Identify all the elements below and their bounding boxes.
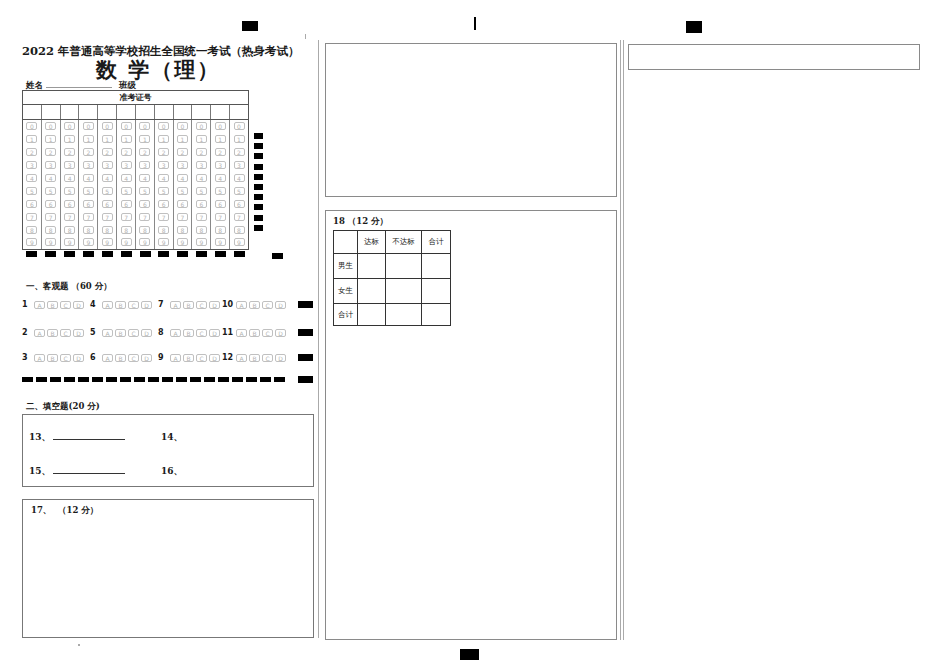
digit-bubble-2: 2 — [234, 148, 245, 156]
digit-bubble-3: 3 — [196, 161, 207, 169]
digit-bubble-1: 1 — [121, 135, 132, 143]
question-number: 6 — [90, 353, 99, 362]
dash-mark — [148, 377, 159, 382]
digit-bubble-2: 2 — [139, 148, 150, 156]
admission-digit-column: 0123456789 — [136, 120, 155, 249]
timing-mark-side — [254, 153, 263, 159]
fill-blank-label: 16、 — [161, 466, 183, 476]
digit-bubble-1: 1 — [83, 135, 94, 143]
option-bubble-b: B — [183, 354, 194, 362]
question-group-2: 2ABCD — [22, 328, 86, 337]
option-bubble-a: A — [34, 329, 45, 337]
admission-number-grid: 准考证号 01234567890123456789012345678901234… — [22, 90, 249, 250]
digit-bubble-5: 5 — [177, 187, 188, 195]
option-bubble-c: C — [196, 301, 207, 309]
digit-bubble-9: 9 — [64, 238, 75, 246]
table-col-header: 达标 — [358, 231, 386, 254]
digit-bubble-8: 8 — [45, 226, 56, 234]
admission-grid-title: 准考证号 — [23, 91, 248, 105]
question-group-4: 4ABCD — [90, 300, 154, 309]
digit-bubble-9: 9 — [26, 238, 37, 246]
option-bubble-b: B — [47, 354, 58, 362]
question-group-1: 1ABCD — [22, 300, 86, 309]
column-separator-left — [318, 40, 319, 638]
timing-mark-bottom — [64, 251, 75, 257]
digit-bubble-1: 1 — [215, 135, 226, 143]
option-bubble-c: C — [128, 301, 139, 309]
name-label: 姓名 — [26, 80, 43, 90]
digit-bubble-9: 9 — [234, 238, 245, 246]
timing-mark-side — [254, 215, 263, 221]
option-bubble-d: D — [209, 329, 220, 337]
table-cell-empty — [386, 279, 422, 304]
digit-bubble-6: 6 — [215, 200, 226, 208]
middle-answer-area-box — [325, 43, 617, 197]
question-group-12: 12ABCD — [222, 353, 288, 362]
digit-bubble-5: 5 — [158, 187, 169, 195]
digit-bubble-8: 8 — [158, 226, 169, 234]
question-number: 2 — [22, 328, 31, 337]
digit-bubble-6: 6 — [234, 200, 245, 208]
digit-bubble-2: 2 — [215, 148, 226, 156]
timing-mark-bottom — [83, 251, 94, 257]
question-number: 4 — [90, 300, 99, 309]
question-number: 8 — [158, 328, 167, 337]
timing-mark-side — [254, 194, 263, 200]
dash-mark — [246, 377, 257, 382]
digit-bubble-5: 5 — [121, 187, 132, 195]
option-bubble-b: B — [115, 354, 126, 362]
option-bubble-a: A — [170, 301, 181, 309]
option-bubble-a: A — [102, 354, 113, 362]
question-group-10: 10ABCD — [222, 300, 288, 309]
dash-mark — [260, 377, 271, 382]
digit-bubble-2: 2 — [196, 148, 207, 156]
dash-mark — [50, 377, 61, 382]
timing-mark-side — [254, 184, 263, 190]
timing-mark-side — [254, 225, 263, 231]
digit-bubble-7: 7 — [196, 213, 207, 221]
timing-mark-side — [254, 143, 263, 149]
digit-bubble-8: 8 — [234, 226, 245, 234]
digit-bubble-0: 0 — [26, 122, 37, 130]
admission-digit-write-cell — [79, 105, 98, 119]
option-bubble-a: A — [34, 354, 45, 362]
table-cell-empty — [386, 254, 422, 279]
digit-bubble-8: 8 — [102, 226, 113, 234]
question-17-label: 17、 — [31, 505, 51, 517]
digit-bubble-9: 9 — [196, 238, 207, 246]
digit-bubble-7: 7 — [215, 213, 226, 221]
dash-mark — [22, 377, 33, 382]
option-bubble-d: D — [141, 329, 152, 337]
table-header-row: 达标不达标合计 — [334, 231, 451, 254]
digit-bubble-6: 6 — [83, 200, 94, 208]
fill-blank-item: 13、 — [29, 431, 125, 444]
option-bubble-d: D — [275, 354, 286, 362]
digit-bubble-8: 8 — [83, 226, 94, 234]
timing-mark-bottom — [140, 251, 151, 257]
option-bubble-a: A — [236, 329, 247, 337]
option-bubble-c: C — [128, 354, 139, 362]
registration-mark-top-left — [242, 21, 258, 31]
option-bubble-a: A — [170, 329, 181, 337]
option-bubble-d: D — [141, 354, 152, 362]
dash-mark — [78, 377, 89, 382]
digit-bubble-6: 6 — [121, 200, 132, 208]
digit-bubble-5: 5 — [215, 187, 226, 195]
digit-bubble-4: 4 — [64, 174, 75, 182]
class-label: 班级 — [119, 80, 136, 90]
question-group-11: 11ABCD — [222, 328, 288, 337]
admission-digit-column: 0123456789 — [98, 120, 117, 249]
admission-write-row — [23, 105, 248, 120]
digit-bubble-7: 7 — [83, 213, 94, 221]
option-bubble-c: C — [196, 354, 207, 362]
timing-mark-bottom — [196, 251, 207, 257]
timing-mark-dash-row — [298, 376, 313, 383]
digit-bubble-0: 0 — [215, 122, 226, 130]
question-group-7: 7ABCD — [158, 300, 222, 309]
dash-mark — [218, 377, 229, 382]
digit-bubble-7: 7 — [26, 213, 37, 221]
digit-bubble-8: 8 — [177, 226, 188, 234]
digit-bubble-1: 1 — [177, 135, 188, 143]
digit-bubble-2: 2 — [45, 148, 56, 156]
admission-digit-column: 0123456789 — [174, 120, 193, 249]
option-bubble-b: B — [47, 301, 58, 309]
digit-bubble-9: 9 — [102, 238, 113, 246]
digit-bubble-5: 5 — [83, 187, 94, 195]
digit-bubble-6: 6 — [26, 200, 37, 208]
digit-bubble-4: 4 — [234, 174, 245, 182]
admission-digit-column: 0123456789 — [61, 120, 80, 249]
digit-bubble-4: 4 — [45, 174, 56, 182]
table-row: 女生 — [334, 279, 451, 304]
table-col-header: 不达标 — [386, 231, 422, 254]
digit-bubble-7: 7 — [64, 213, 75, 221]
option-bubble-c: C — [262, 329, 273, 337]
digit-bubble-3: 3 — [45, 161, 56, 169]
digit-bubble-5: 5 — [26, 187, 37, 195]
digit-bubble-9: 9 — [121, 238, 132, 246]
option-bubble-a: A — [34, 301, 45, 309]
digit-bubble-3: 3 — [177, 161, 188, 169]
question-number: 7 — [158, 300, 167, 309]
admission-digit-write-cell — [98, 105, 117, 119]
admission-digit-column: 0123456789 — [117, 120, 136, 249]
digit-bubble-2: 2 — [26, 148, 37, 156]
digit-bubble-0: 0 — [196, 122, 207, 130]
digit-bubble-0: 0 — [83, 122, 94, 130]
column-separator-right-outer — [620, 40, 621, 640]
fill-blank-label: 15、 — [29, 466, 51, 476]
timing-mark-side — [254, 133, 263, 139]
digit-bubble-8: 8 — [215, 226, 226, 234]
digit-bubble-3: 3 — [83, 161, 94, 169]
timing-mark-bottom — [121, 251, 132, 257]
question-group-9: 9ABCD — [158, 353, 222, 362]
digit-bubble-0: 0 — [234, 122, 245, 130]
digit-bubble-3: 3 — [234, 161, 245, 169]
digit-bubble-1: 1 — [196, 135, 207, 143]
digit-bubble-3: 3 — [215, 161, 226, 169]
timing-mark-bottom — [234, 251, 245, 257]
timing-mark-row — [298, 329, 313, 336]
digit-bubble-0: 0 — [45, 122, 56, 130]
digit-bubble-1: 1 — [45, 135, 56, 143]
option-bubble-a: A — [102, 329, 113, 337]
digit-bubble-0: 0 — [102, 122, 113, 130]
table-cell-empty — [422, 279, 451, 304]
table-row: 合计 — [334, 304, 451, 326]
table-row: 男生 — [334, 254, 451, 279]
digit-bubble-9: 9 — [139, 238, 150, 246]
digit-bubble-4: 4 — [26, 174, 37, 182]
option-bubble-b: B — [249, 354, 260, 362]
stray-dot-mark — [78, 644, 80, 646]
digit-bubble-6: 6 — [45, 200, 56, 208]
digit-bubble-9: 9 — [158, 238, 169, 246]
digit-bubble-9: 9 — [177, 238, 188, 246]
timing-mark-row — [298, 301, 313, 308]
digit-bubble-2: 2 — [83, 148, 94, 156]
timing-mark-bottom — [177, 251, 188, 257]
question-18-answer-box: 18 （12 分） 达标不达标合计男生女生合计 — [325, 210, 617, 640]
digit-bubble-0: 0 — [177, 122, 188, 130]
admission-digit-write-cell — [211, 105, 230, 119]
option-bubble-d: D — [209, 301, 220, 309]
option-bubble-a: A — [102, 301, 113, 309]
question-group-8: 8ABCD — [158, 328, 222, 337]
admission-digit-column: 0123456789 — [211, 120, 230, 249]
digit-bubble-2: 2 — [158, 148, 169, 156]
admission-digit-column: 0123456789 — [155, 120, 174, 249]
digit-bubble-7: 7 — [102, 213, 113, 221]
timing-mark-bottom — [102, 251, 113, 257]
answer-blank-line — [53, 466, 125, 474]
objective-section-heading: 一、客观题 （60 分） — [26, 281, 112, 293]
question-number: 3 — [22, 353, 31, 362]
registration-line-top-center — [474, 17, 476, 30]
digit-bubble-9: 9 — [83, 238, 94, 246]
table-cell-empty — [422, 254, 451, 279]
digit-bubble-3: 3 — [26, 161, 37, 169]
dash-mark — [92, 377, 103, 382]
option-bubble-c: C — [196, 329, 207, 337]
digit-bubble-1: 1 — [102, 135, 113, 143]
dashed-separator-line — [22, 377, 288, 382]
digit-bubble-4: 4 — [121, 174, 132, 182]
timing-mark-bottom — [158, 251, 169, 257]
digit-bubble-6: 6 — [196, 200, 207, 208]
dash-mark — [64, 377, 75, 382]
table-cell-empty — [358, 304, 386, 326]
dash-mark — [274, 377, 285, 382]
digit-bubble-8: 8 — [139, 226, 150, 234]
option-bubble-b: B — [115, 301, 126, 309]
dash-mark — [190, 377, 201, 382]
digit-bubble-6: 6 — [158, 200, 169, 208]
digit-bubble-6: 6 — [139, 200, 150, 208]
digit-bubble-7: 7 — [234, 213, 245, 221]
timing-mark-side — [254, 204, 263, 210]
answer-blank-line — [53, 432, 125, 440]
digit-bubble-3: 3 — [139, 161, 150, 169]
table-cell-empty — [358, 254, 386, 279]
question-18-label: 18 （12 分） — [333, 216, 388, 228]
digit-bubble-5: 5 — [45, 187, 56, 195]
option-bubble-a: A — [170, 354, 181, 362]
digit-bubble-4: 4 — [139, 174, 150, 182]
fill-blank-label: 13、 — [29, 432, 51, 442]
admission-digit-write-cell — [61, 105, 80, 119]
timing-mark-bottom — [215, 251, 226, 257]
admission-digit-column: 0123456789 — [192, 120, 211, 249]
fill-in-answer-box: 13、14、15、16、 — [22, 414, 314, 487]
timing-mark-bottom-extra — [272, 253, 283, 259]
digit-bubble-2: 2 — [102, 148, 113, 156]
option-bubble-a: A — [236, 354, 247, 362]
option-bubble-d: D — [275, 301, 286, 309]
digit-bubble-1: 1 — [64, 135, 75, 143]
digit-bubble-5: 5 — [102, 187, 113, 195]
timing-mark-bottom — [26, 251, 37, 257]
digit-bubble-1: 1 — [139, 135, 150, 143]
timing-mark-row — [298, 354, 313, 361]
table-col-header: 合计 — [422, 231, 451, 254]
answer-sheet-page: 2022 年普通高等学校招生全国统一考试（热身考试） 数 学（理） 姓名班级 准… — [0, 0, 950, 672]
option-bubble-c: C — [60, 329, 71, 337]
digit-bubble-5: 5 — [139, 187, 150, 195]
option-bubble-b: B — [183, 301, 194, 309]
table-row-header: 男生 — [334, 254, 358, 279]
option-bubble-c: C — [262, 301, 273, 309]
digit-bubble-0: 0 — [158, 122, 169, 130]
question-group-5: 5ABCD — [90, 328, 154, 337]
dash-mark — [232, 377, 243, 382]
digit-bubble-1: 1 — [234, 135, 245, 143]
digit-bubble-6: 6 — [102, 200, 113, 208]
dash-mark — [162, 377, 173, 382]
admission-digit-column: 0123456789 — [23, 120, 42, 249]
digit-bubble-8: 8 — [121, 226, 132, 234]
registration-mark-top-right — [686, 21, 702, 33]
registration-mark-bottom-center — [460, 649, 479, 660]
option-bubble-b: B — [115, 329, 126, 337]
dash-mark — [120, 377, 131, 382]
right-column-header-box — [628, 44, 920, 70]
question-18-statistics-table: 达标不达标合计男生女生合计 — [333, 230, 451, 326]
table-corner-cell — [334, 231, 358, 254]
digit-bubble-5: 5 — [196, 187, 207, 195]
question-number: 5 — [90, 328, 99, 337]
table-row-header: 合计 — [334, 304, 358, 326]
digit-bubble-4: 4 — [158, 174, 169, 182]
digit-bubble-7: 7 — [121, 213, 132, 221]
fill-blank-item: 15、 — [29, 465, 125, 478]
option-bubble-c: C — [262, 354, 273, 362]
digit-bubble-1: 1 — [158, 135, 169, 143]
digit-bubble-9: 9 — [45, 238, 56, 246]
admission-digit-write-cell — [230, 105, 248, 119]
name-blank-line — [46, 79, 112, 88]
question-number: 1 — [22, 300, 31, 309]
admission-digit-write-cell — [117, 105, 136, 119]
admission-digit-write-cell — [23, 105, 42, 119]
option-bubble-a: A — [236, 301, 247, 309]
fill-blank-item: 14、 — [161, 431, 183, 444]
admission-digit-write-cell — [192, 105, 211, 119]
digit-bubble-4: 4 — [83, 174, 94, 182]
option-bubble-c: C — [60, 354, 71, 362]
digit-bubble-6: 6 — [64, 200, 75, 208]
table-cell-empty — [386, 304, 422, 326]
timing-mark-bottom — [45, 251, 56, 257]
question-group-6: 6ABCD — [90, 353, 154, 362]
digit-bubble-0: 0 — [121, 122, 132, 130]
question-number: 9 — [158, 353, 167, 362]
option-bubble-d: D — [73, 354, 84, 362]
stray-tick-mark — [305, 34, 306, 39]
admission-digit-column: 0123456789 — [42, 120, 61, 249]
dash-mark — [36, 377, 47, 382]
admission-digit-column: 0123456789 — [79, 120, 98, 249]
digit-bubble-7: 7 — [158, 213, 169, 221]
digit-bubble-3: 3 — [64, 161, 75, 169]
admission-digit-write-cell — [42, 105, 61, 119]
digit-bubble-3: 3 — [121, 161, 132, 169]
question-17-score: （12 分） — [58, 505, 98, 517]
digit-bubble-9: 9 — [215, 238, 226, 246]
admission-digit-write-cell — [136, 105, 155, 119]
question-number: 12 — [222, 353, 233, 362]
digit-bubble-8: 8 — [64, 226, 75, 234]
digit-bubble-7: 7 — [177, 213, 188, 221]
digit-bubble-5: 5 — [234, 187, 245, 195]
column-separator-right-inner — [623, 40, 624, 640]
timing-mark-side — [254, 174, 263, 180]
digit-bubble-4: 4 — [215, 174, 226, 182]
digit-bubble-8: 8 — [26, 226, 37, 234]
digit-bubble-6: 6 — [177, 200, 188, 208]
digit-bubble-7: 7 — [45, 213, 56, 221]
option-bubble-d: D — [275, 329, 286, 337]
table-cell-empty — [422, 304, 451, 326]
digit-bubble-2: 2 — [121, 148, 132, 156]
digit-bubble-0: 0 — [139, 122, 150, 130]
digit-bubble-3: 3 — [158, 161, 169, 169]
dash-mark — [176, 377, 187, 382]
option-bubble-d: D — [141, 301, 152, 309]
digit-bubble-0: 0 — [64, 122, 75, 130]
digit-bubble-8: 8 — [196, 226, 207, 234]
table-row-header: 女生 — [334, 279, 358, 304]
digit-bubble-4: 4 — [102, 174, 113, 182]
option-bubble-b: B — [47, 329, 58, 337]
option-bubble-b: B — [249, 329, 260, 337]
option-bubble-d: D — [73, 301, 84, 309]
option-bubble-c: C — [128, 329, 139, 337]
dash-mark — [106, 377, 117, 382]
table-cell-empty — [358, 279, 386, 304]
digit-bubble-7: 7 — [139, 213, 150, 221]
option-bubble-d: D — [73, 329, 84, 337]
question-number: 10 — [222, 300, 233, 309]
admission-digit-write-cell — [155, 105, 174, 119]
admission-digit-column: 0123456789 — [230, 120, 248, 249]
digit-bubble-3: 3 — [102, 161, 113, 169]
